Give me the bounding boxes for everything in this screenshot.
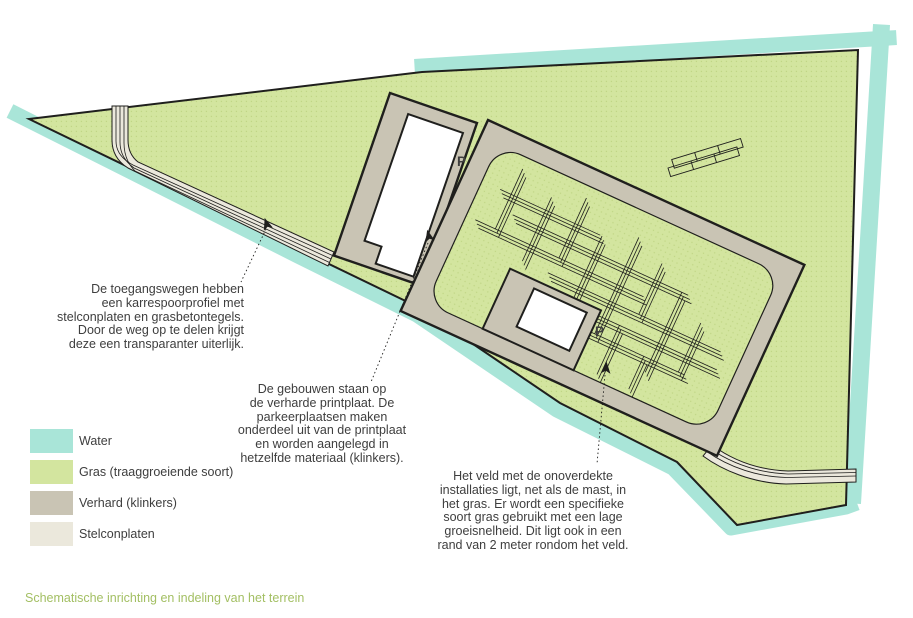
- legend-item-stelcon: Stelconplaten: [30, 522, 233, 546]
- figure-caption: Schematische inrichting en indeling van …: [25, 591, 304, 605]
- legend-label: Gras (traaggroeiende soort): [79, 465, 233, 479]
- legend-item-paved: Verhard (klinkers): [30, 491, 233, 515]
- annotation-buildings: De gebouwen staan op de verharde printpl…: [226, 383, 418, 466]
- legend-label: Water: [79, 434, 112, 448]
- parking-label-east: P: [595, 324, 604, 339]
- legend: Water Gras (traaggroeiende soort) Verhar…: [30, 429, 233, 553]
- stelcon-swatch: [30, 522, 73, 546]
- water-swatch: [30, 429, 73, 453]
- grass-swatch: [30, 460, 73, 484]
- legend-item-water: Water: [30, 429, 233, 453]
- legend-label: Stelconplaten: [79, 527, 155, 541]
- site-plan-page: P P De toegangswegen hebben een karrespo…: [0, 0, 913, 618]
- legend-label: Verhard (klinkers): [79, 496, 177, 510]
- paved-swatch: [30, 491, 73, 515]
- parking-label-west: P: [457, 154, 466, 169]
- legend-item-grass: Gras (traaggroeiende soort): [30, 460, 233, 484]
- annotation-field: Het veld met de onoverdekte installaties…: [427, 470, 639, 553]
- annotation-access-roads: De toegangswegen hebben een karrespoorpr…: [36, 283, 244, 352]
